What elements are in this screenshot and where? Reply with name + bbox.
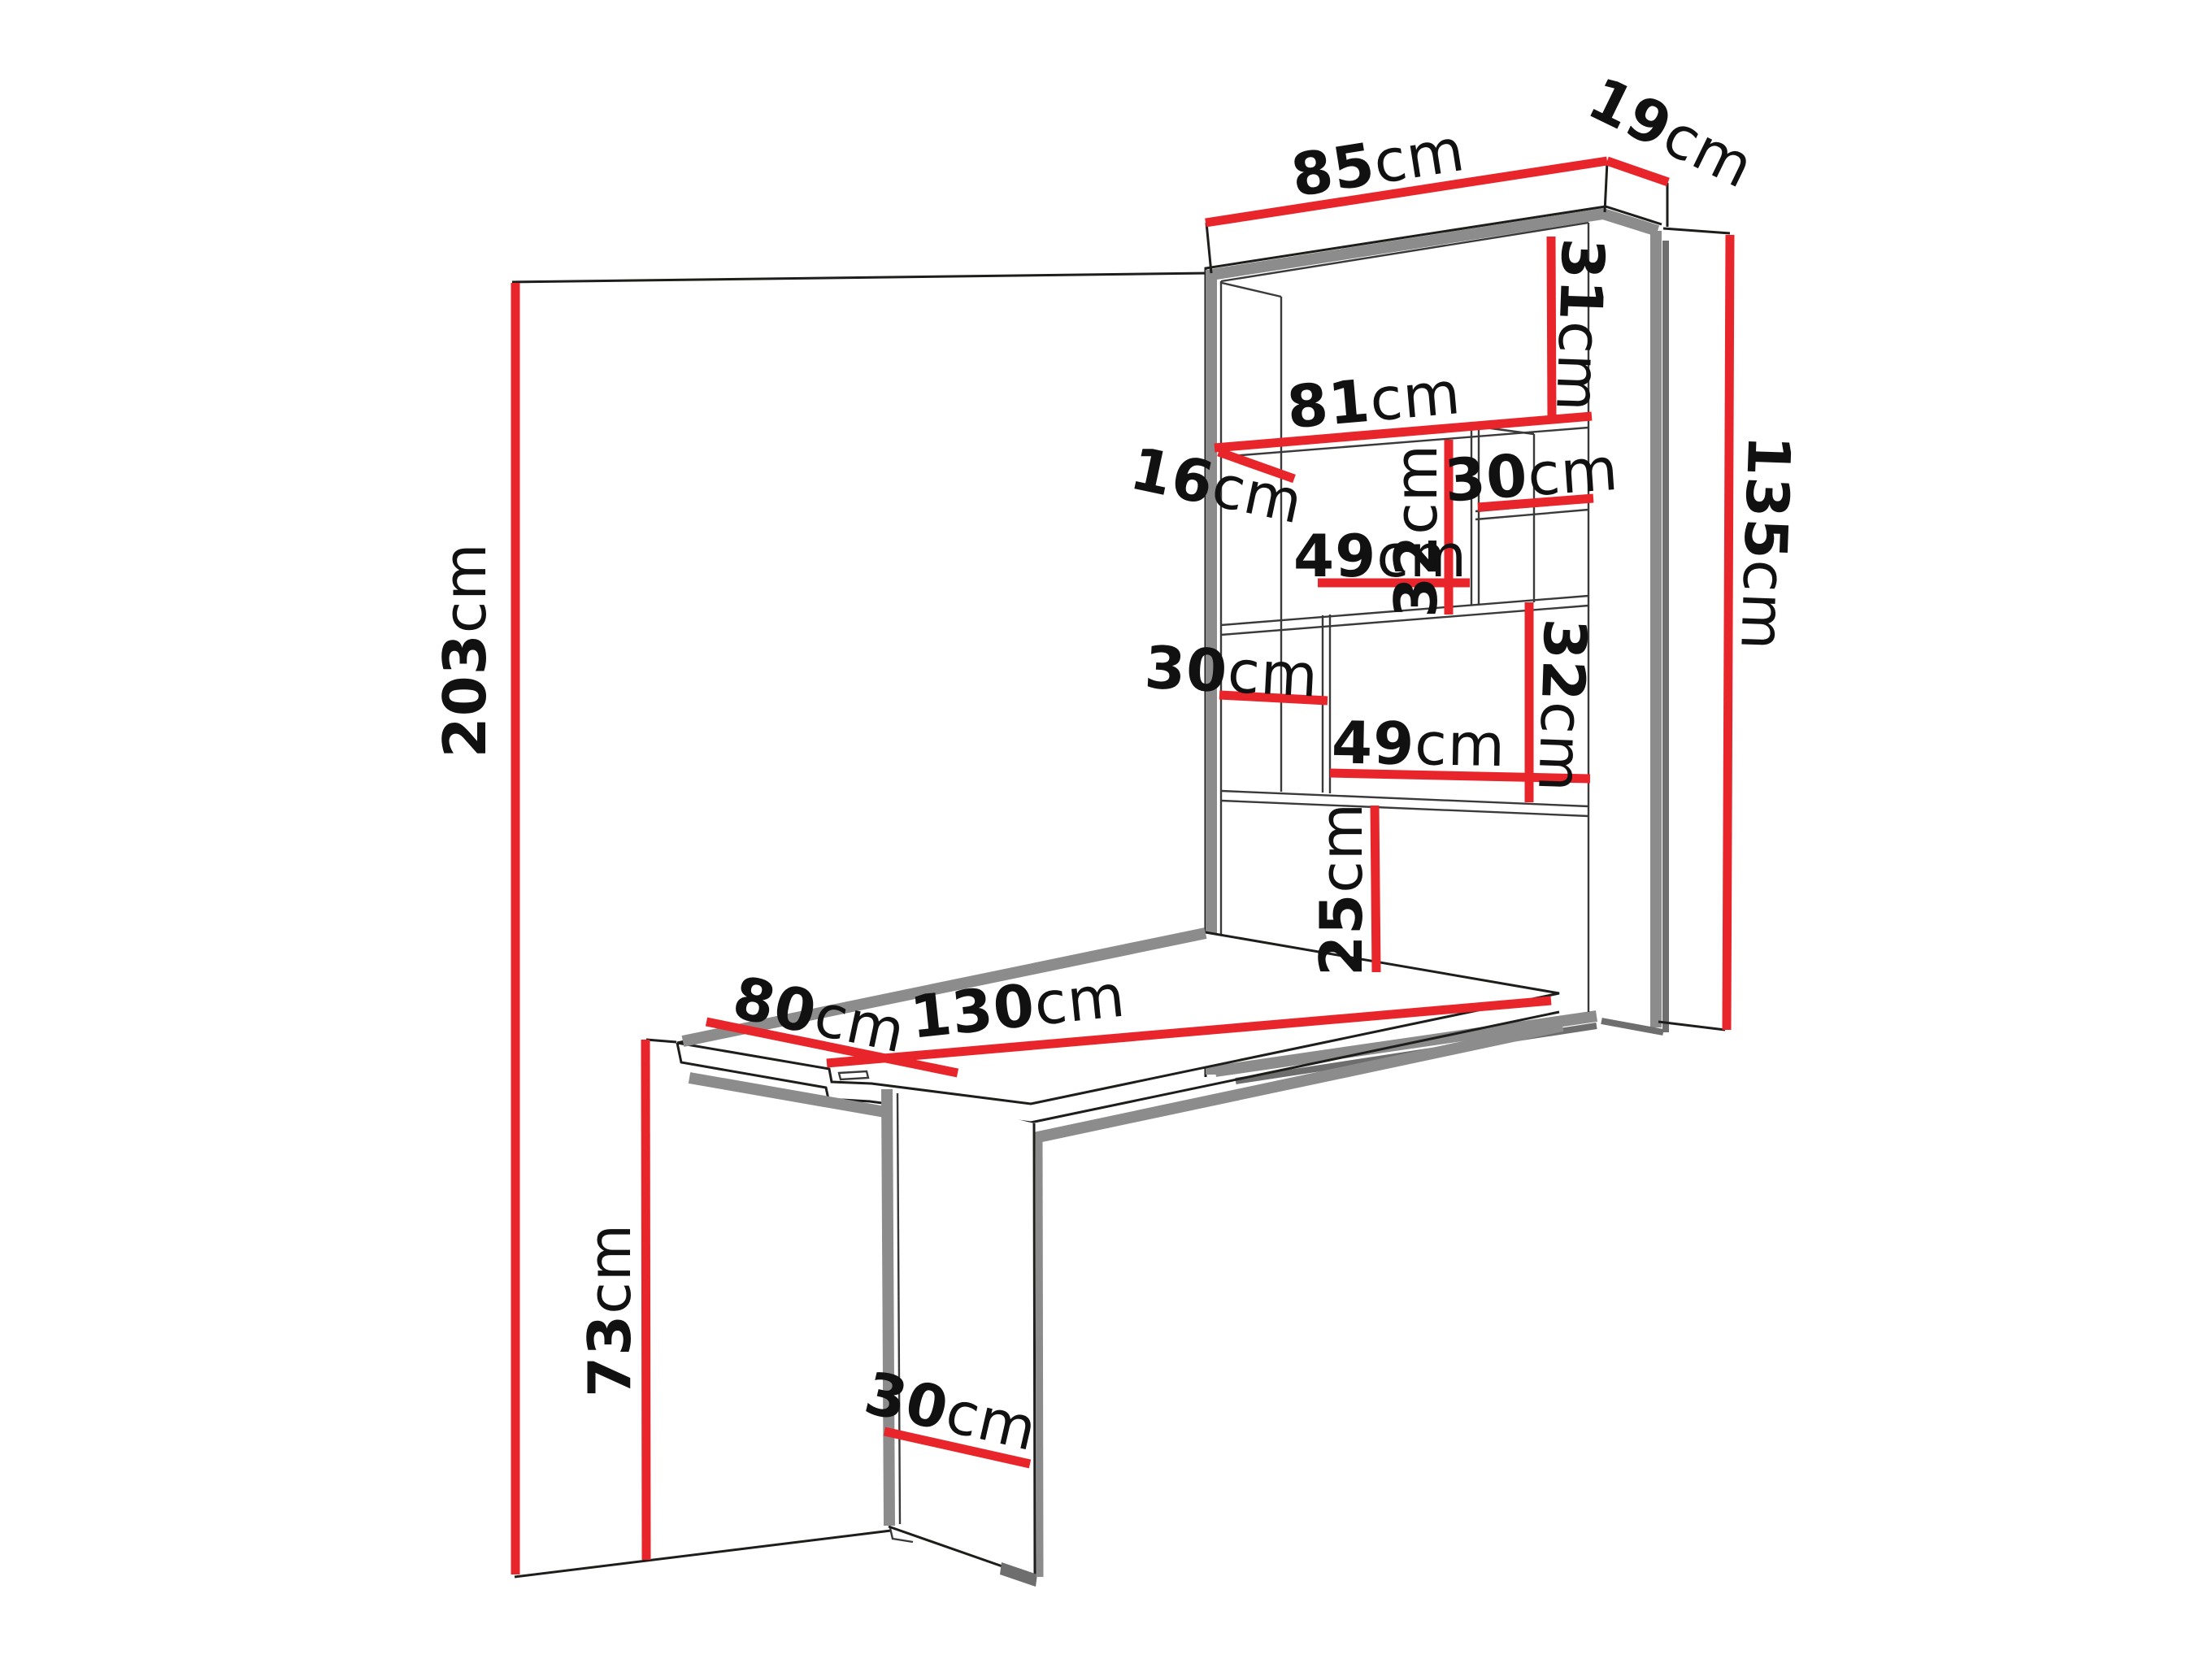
extension-line-height-top xyxy=(1663,228,1730,233)
table-leg xyxy=(886,1088,1040,1587)
dim-label-lower-right-compartment-width: 49cm xyxy=(1331,708,1506,780)
dim-label-upper-right-compartment-width: 30cm xyxy=(1442,435,1620,515)
extension-line-top-left xyxy=(1206,223,1211,273)
dim-label-bottom-compartment-height: 25cm xyxy=(1307,802,1375,976)
dim-label-lower-compartment-height: 32cm xyxy=(1525,618,1599,794)
wall-top-edge xyxy=(512,273,1209,282)
dim-label-cabinet-height: 135cm xyxy=(1727,434,1803,652)
dim-label-lower-left-compartment-width: 30cm xyxy=(1143,633,1320,710)
leg-right-shadow xyxy=(1039,1136,1040,1577)
extension-line-top-right xyxy=(1605,162,1607,212)
leg-left-edge xyxy=(887,1089,889,1526)
leg-panel xyxy=(886,1088,1035,1578)
dim-label-top-compartment-height: 31cm xyxy=(1543,237,1617,414)
furniture-dimension-diagram: 85cm 19cm 31cm 81cm 16cm 30cm 32cm 49cm … xyxy=(0,0,2212,1659)
dim-label-wall-height: 203cm xyxy=(431,542,499,758)
extension-line-table-height xyxy=(646,1040,676,1042)
dimension-line-table-height xyxy=(645,1040,646,1560)
dim-label-upper-left-compartment-width: 49cm xyxy=(1293,522,1467,590)
dim-label-cabinet-width: 85cm xyxy=(1287,115,1469,210)
diagram-canvas: 85cm 19cm 31cm 81cm 16cm 30cm 32cm 49cm … xyxy=(0,0,2212,1659)
dim-label-table-height: 73cm xyxy=(576,1223,644,1397)
wall-bottom-edge xyxy=(515,1531,891,1577)
